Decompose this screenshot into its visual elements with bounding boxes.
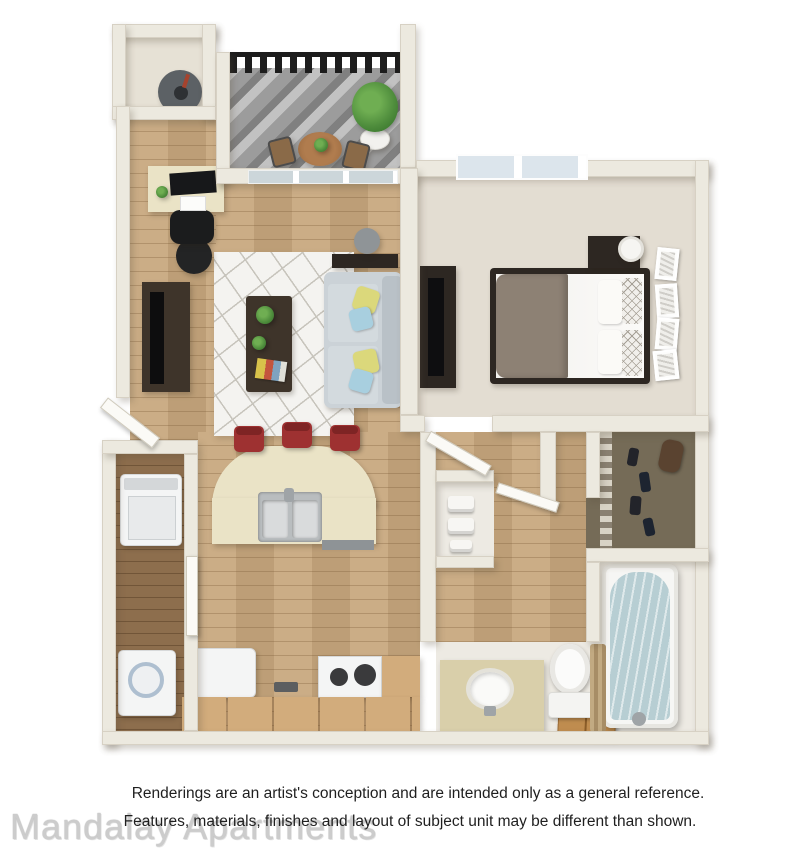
water-heater-cap <box>128 662 164 698</box>
nightstand-lamp <box>618 236 644 262</box>
wall-closet-left <box>586 432 600 498</box>
vanity-sink <box>466 668 514 710</box>
disclaimer-line-2: Features, materials, finishes and layout… <box>0 814 800 830</box>
bar-stool-2 <box>282 422 312 448</box>
linen-towel-2 <box>448 518 474 534</box>
coffee-table-plant-2 <box>252 336 266 350</box>
linen-towel-3 <box>450 540 472 552</box>
nook-table-centerpiece <box>174 86 188 100</box>
wall-art-frame-1 <box>654 247 679 281</box>
desk-monitor <box>169 170 216 195</box>
wall-bottom-outer <box>102 731 709 745</box>
bathtub-faucet <box>632 712 646 726</box>
bed-comforter <box>496 274 568 378</box>
bedroom-tv <box>428 278 444 376</box>
coffee-table-book <box>255 358 287 382</box>
refrigerator <box>190 648 256 698</box>
wall-west-lower <box>102 440 116 745</box>
kitchen-sink-basin-right <box>292 500 318 538</box>
bed-pillow-patterned-1 <box>622 278 642 324</box>
toilet-tank <box>548 692 594 718</box>
wall-hall-mid-stub <box>540 432 556 504</box>
desk-paper <box>180 196 206 211</box>
kitchen-faucet <box>284 488 294 502</box>
balcony-potted-plant <box>352 82 398 132</box>
wall-west-upper <box>116 106 130 398</box>
wall-art-frame-2 <box>655 283 679 318</box>
desk-plant <box>156 186 168 198</box>
arc-floor-lamp <box>354 228 380 254</box>
vanity-faucet <box>484 706 496 716</box>
stove-burner-left <box>330 668 348 686</box>
sofa-backrest <box>382 276 402 404</box>
toilet-bowl <box>550 644 590 694</box>
bathtub-water <box>610 572 670 720</box>
laundry-closet-door <box>186 556 198 636</box>
shower-curtain <box>590 644 606 732</box>
kitchen-cabinets <box>182 697 420 731</box>
wall-east-outer <box>695 160 709 745</box>
bed-pillow-patterned-2 <box>622 330 642 376</box>
kitchen-counter-right <box>382 656 420 697</box>
bedroom-window <box>456 154 588 180</box>
floor-plan-rendering: Renderings are an artist's conception an… <box>0 0 800 858</box>
balcony-table-plant <box>314 138 328 152</box>
wall-art-frame-3 <box>655 317 680 351</box>
bed-pillow-white-2 <box>598 330 622 374</box>
wall-closet-bottom <box>586 548 709 562</box>
wall-art-frame-4 <box>652 349 679 381</box>
washer-controls <box>124 478 178 490</box>
stove-burner-right <box>354 664 376 686</box>
bar-stool-1 <box>234 426 264 452</box>
bed-pillow-white-1 <box>598 280 622 324</box>
wall-linen-bottom <box>436 556 494 568</box>
sofa-side-table <box>332 254 398 268</box>
tv-screen <box>150 292 164 384</box>
wall-living-bedroom-divider <box>400 168 418 415</box>
kitchen-sink-basin-left <box>262 500 288 538</box>
coffee-table-plant-1 <box>256 306 274 324</box>
linen-towel-1 <box>448 496 474 512</box>
disclaimer: Renderings are an artist's conception an… <box>0 778 800 829</box>
closet-shoes-3 <box>629 496 641 516</box>
wall-hall-left <box>420 432 436 642</box>
sliding-glass-door <box>248 170 398 184</box>
wall-balcony-right <box>400 24 416 168</box>
wall-tub-stub <box>586 562 600 642</box>
office-chair-seat <box>170 210 214 244</box>
wall-nook-top <box>112 24 216 38</box>
closet-shelf-band <box>600 432 612 548</box>
bar-stool-3 <box>330 425 360 451</box>
balcony-railing <box>230 52 400 73</box>
wall-bedroom-bottom-a <box>400 415 425 432</box>
counter-item <box>274 682 298 692</box>
dishwasher <box>322 540 374 550</box>
disclaimer-line-1: Renderings are an artist's conception an… <box>0 786 800 802</box>
wall-balcony-left <box>216 52 230 184</box>
wall-bedroom-bottom-b <box>492 415 709 432</box>
washer-lid <box>128 496 176 540</box>
